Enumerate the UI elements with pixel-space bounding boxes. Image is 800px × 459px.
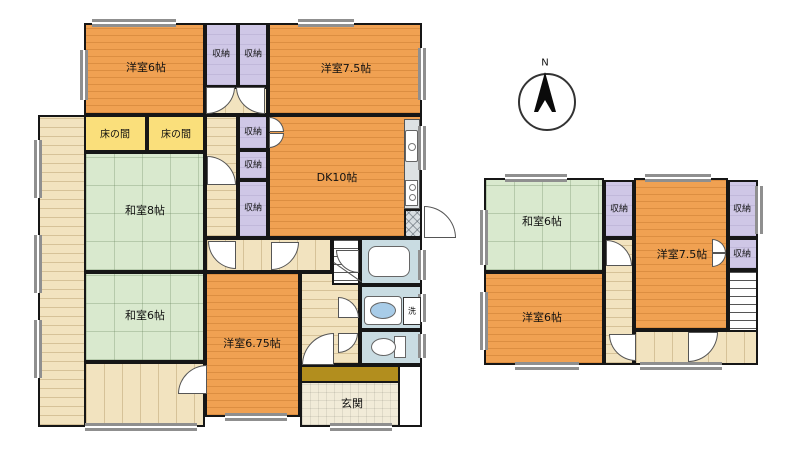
room-label-f1-japanese-6: 和室6帖 <box>125 307 165 323</box>
window <box>418 126 426 170</box>
closet-label: 収納 <box>733 247 751 260</box>
window <box>640 362 722 370</box>
window <box>34 235 42 293</box>
tokonoma-label: 床の間 <box>161 126 191 141</box>
window <box>418 334 426 358</box>
window <box>418 48 426 100</box>
room-label-f1-western-6: 洋室6帖 <box>126 59 166 75</box>
stairs-2f <box>728 270 758 332</box>
window <box>755 186 763 234</box>
room-label-f2-western-7-5: 洋室7.5帖 <box>657 246 708 262</box>
toilet-bowl-icon <box>371 338 396 356</box>
room-label-entrance: 玄関 <box>341 395 363 411</box>
shoe-cabinet <box>398 365 422 427</box>
room-label-f2-japanese-6: 和室6帖 <box>522 213 562 229</box>
window <box>418 250 426 280</box>
closet-label: 収納 <box>212 47 230 60</box>
window <box>92 19 176 27</box>
room-label-f1-western-7-5: 洋室7.5帖 <box>321 60 372 76</box>
stove-burner-icon <box>409 194 416 201</box>
room-label-f1-dk-10: DK10帖 <box>317 169 358 185</box>
window <box>34 140 42 198</box>
window <box>85 423 197 431</box>
closet-label: 収納 <box>244 201 262 214</box>
closet-label: 収納 <box>244 158 262 171</box>
door-arc <box>424 206 456 238</box>
window <box>34 320 42 378</box>
window <box>505 174 567 182</box>
window <box>225 413 287 421</box>
laundry-label: 洗 <box>408 306 416 317</box>
room-label-f1-japanese-8: 和室8帖 <box>125 202 165 218</box>
compass-needle-notch-icon <box>538 100 552 112</box>
closet-label: 収納 <box>733 202 751 215</box>
entrance-sliding-door <box>330 423 392 431</box>
room-label-f1-western-6-75: 洋室6.75帖 <box>223 335 281 351</box>
closet-label: 収納 <box>244 125 262 138</box>
wash-basin-bowl-icon <box>370 302 396 319</box>
window <box>480 210 488 265</box>
stove-burner-icon <box>409 184 416 191</box>
bathtub-icon <box>368 246 410 277</box>
window <box>80 50 88 100</box>
kitchen-backdoor-tile <box>404 209 422 238</box>
window <box>515 362 579 370</box>
window <box>645 174 711 182</box>
closet-label: 収納 <box>610 202 628 215</box>
tokonoma-label: 床の間 <box>100 126 130 141</box>
compass-north-label: N <box>541 58 548 69</box>
kitchen-faucet-icon <box>408 143 416 151</box>
engawa-left <box>38 115 86 427</box>
window <box>480 292 488 350</box>
room-label-f2-western-6: 洋室6帖 <box>522 309 562 325</box>
closet-label: 収納 <box>244 47 262 60</box>
floorplan-canvas: N 洋室6帖 収納 収納 洋室7.5帖 床の間 床の間 和室8帖 収納 収納 収… <box>0 0 800 459</box>
window <box>298 19 354 27</box>
